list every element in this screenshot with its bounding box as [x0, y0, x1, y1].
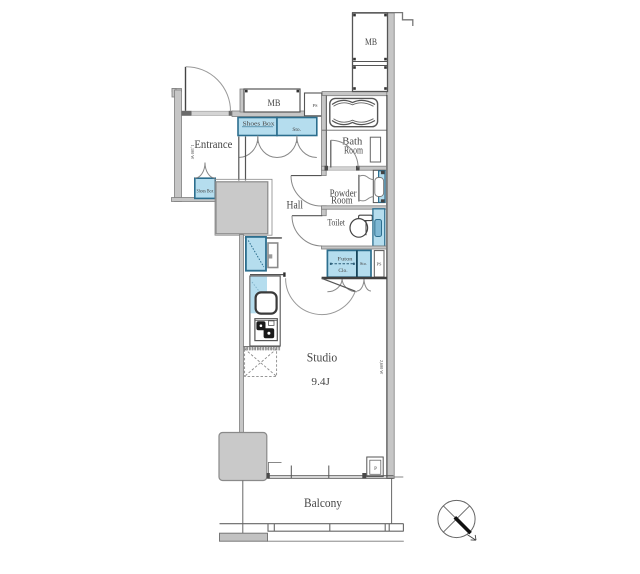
svg-text:PS: PS [377, 262, 382, 267]
svg-text:Hall: Hall [287, 199, 304, 211]
svg-text:Clo.: Clo. [338, 268, 348, 274]
svg-text:PS: PS [312, 103, 318, 108]
svg-text:MB: MB [365, 37, 377, 47]
svg-text:P: P [374, 467, 377, 472]
svg-text:MB: MB [268, 98, 281, 108]
svg-text:Balcony: Balcony [304, 496, 343, 510]
svg-text:Futon: Futon [338, 258, 354, 263]
svg-text:9.4J: 9.4J [311, 377, 330, 388]
svg-text:Sto.: Sto. [292, 127, 301, 133]
svg-text:Shoes Box: Shoes Box [243, 120, 276, 127]
svg-text:Shoes Box: Shoes Box [197, 190, 214, 195]
svg-text:Entrance: Entrance [194, 139, 232, 151]
svg-text:Sto.: Sto. [360, 261, 367, 266]
svg-text:Toilet: Toilet [327, 218, 345, 228]
svg-text:Room: Room [331, 196, 353, 207]
svg-text:Studio: Studio [307, 349, 338, 364]
svg-text:Room: Room [344, 145, 363, 157]
